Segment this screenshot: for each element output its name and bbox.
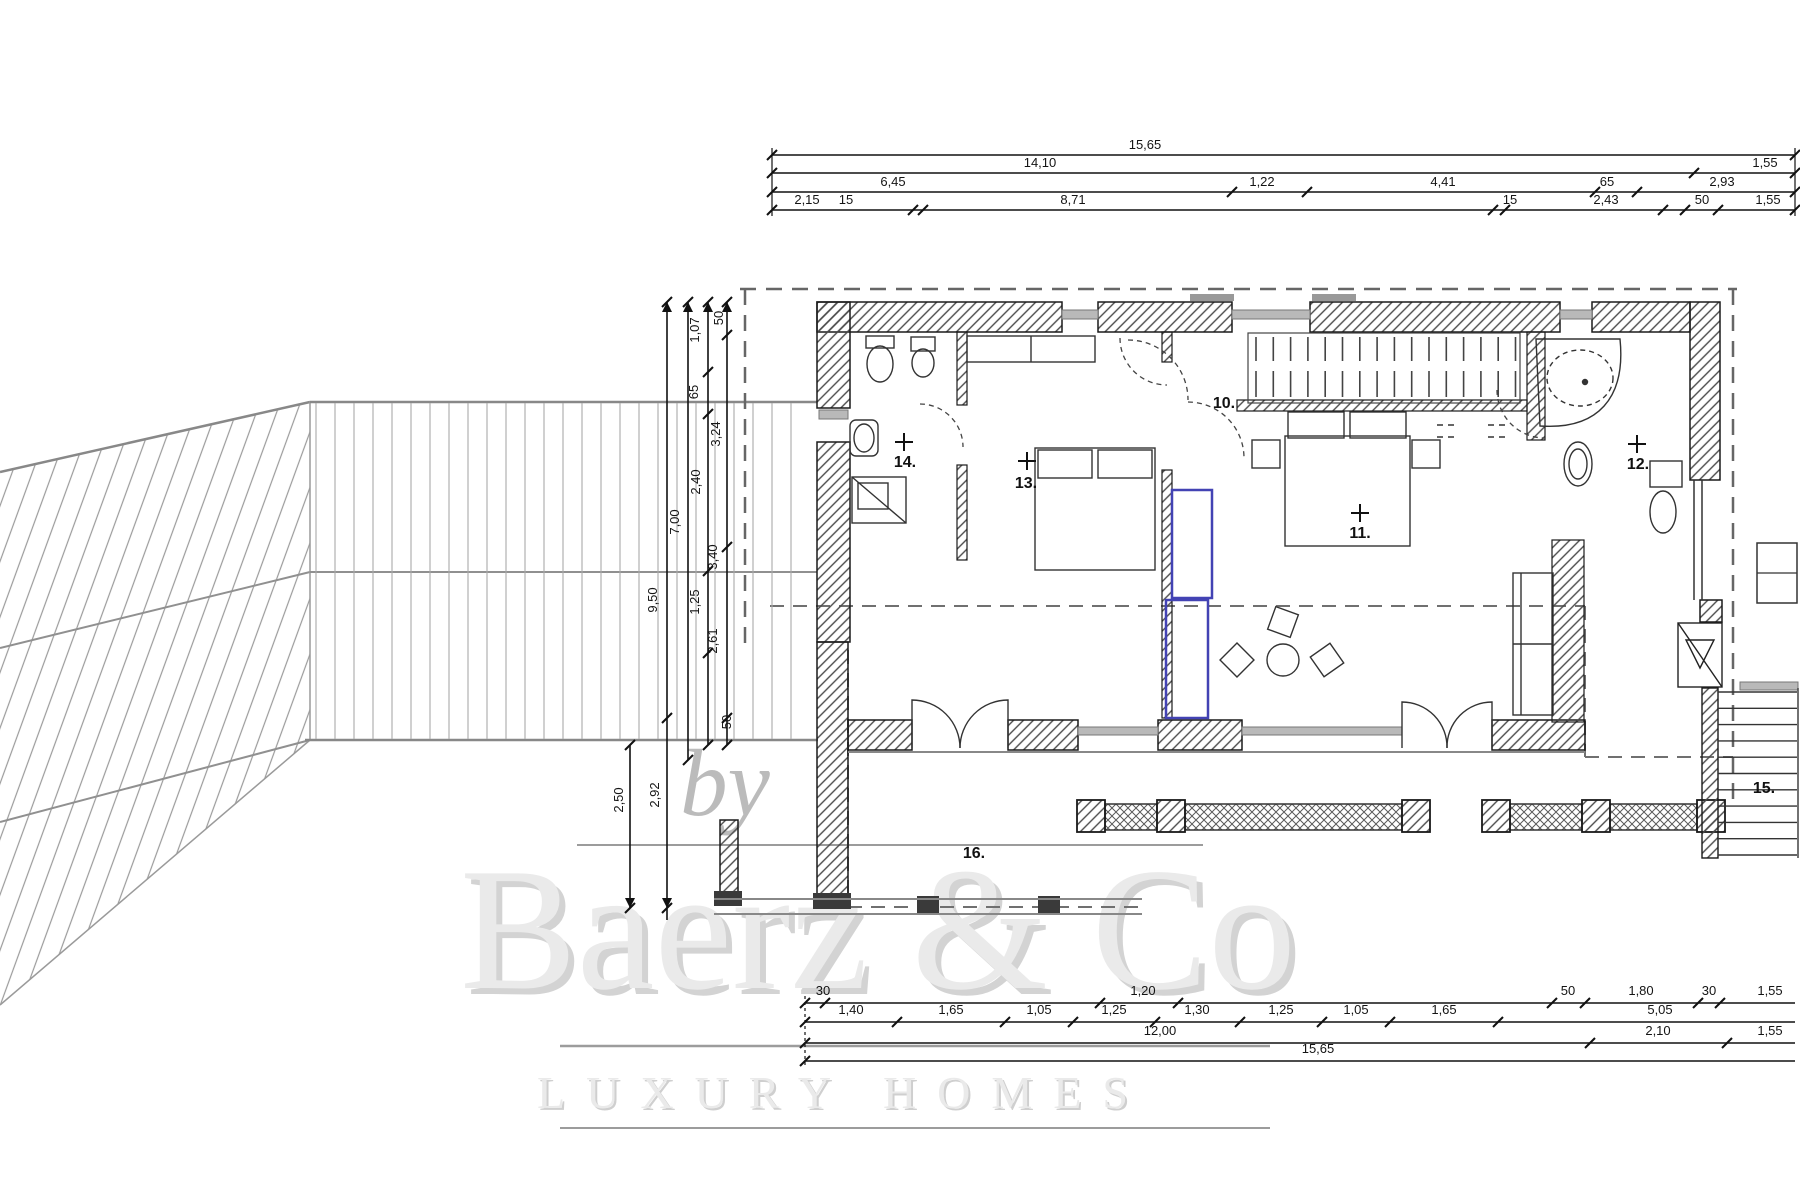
svg-text:1,25: 1,25 — [1101, 1002, 1126, 1017]
svg-text:1,55: 1,55 — [1755, 192, 1780, 207]
staircase-right — [1702, 543, 1798, 858]
svg-text:50: 50 — [1561, 983, 1575, 998]
chair-icon — [1310, 643, 1343, 676]
room-label-15: 15. — [1753, 780, 1775, 797]
svg-text:1,07: 1,07 — [687, 317, 702, 342]
toilet-icon — [867, 346, 893, 382]
floor-plan-page: byBaerz & CoBaerz & CoLUXURY HOMESLUXURY… — [0, 0, 1800, 1200]
svg-text:1,25: 1,25 — [687, 589, 702, 614]
svg-text:1,05: 1,05 — [1343, 1002, 1368, 1017]
svg-text:1,30: 1,30 — [1184, 1002, 1209, 1017]
room-label-13: 13. — [1015, 475, 1037, 492]
svg-text:8,71: 8,71 — [1060, 192, 1085, 207]
room-labels: 10.11.12.13.14.15.16. — [894, 395, 1775, 862]
svg-text:5,05: 5,05 — [1647, 1002, 1672, 1017]
sloped-deck-band — [0, 402, 310, 1005]
svg-text:50: 50 — [1695, 192, 1709, 207]
toilet-tank-icon — [1650, 461, 1682, 487]
svg-text:1,25: 1,25 — [1268, 1002, 1293, 1017]
svg-text:1,55: 1,55 — [1757, 983, 1782, 998]
staircase-room10 — [1248, 333, 1520, 403]
svg-text:2,43: 2,43 — [1593, 192, 1618, 207]
bed-icon — [1035, 448, 1155, 570]
svg-text:15,65: 15,65 — [1129, 137, 1162, 152]
watermark: byBaerz & CoBaerz & CoLUXURY HOMESLUXURY… — [460, 730, 1302, 1128]
toilet-icon — [1650, 491, 1676, 533]
svg-text:1,55: 1,55 — [1752, 155, 1777, 170]
interior-walls — [957, 332, 1584, 722]
svg-text:1,40: 1,40 — [838, 1002, 863, 1017]
svg-text:6,45: 6,45 — [880, 174, 905, 189]
chair-icon — [1220, 643, 1254, 677]
room-label-14: 14. — [894, 454, 916, 471]
svg-text:1,22: 1,22 — [1249, 174, 1274, 189]
room-label-12: 12. — [1627, 456, 1649, 473]
svg-text:15: 15 — [839, 192, 853, 207]
svg-text:2,15: 2,15 — [794, 192, 819, 207]
blue-closets — [1166, 490, 1212, 718]
svg-text:12,00: 12,00 — [1144, 1023, 1177, 1038]
svg-text:2,61: 2,61 — [705, 628, 720, 653]
room-label-16: 16. — [963, 845, 985, 862]
svg-text:4,41: 4,41 — [1430, 174, 1455, 189]
svg-text:15: 15 — [1503, 192, 1517, 207]
svg-text:30: 30 — [816, 983, 830, 998]
svg-text:15,65: 15,65 — [1302, 1041, 1335, 1056]
svg-text:50: 50 — [719, 715, 734, 729]
svg-text:2,10: 2,10 — [1645, 1023, 1670, 1038]
watermark-brand: Baerz & Co — [460, 832, 1296, 1026]
svg-text:1,05: 1,05 — [1026, 1002, 1051, 1017]
svg-text:65: 65 — [1600, 174, 1614, 189]
svg-text:1,65: 1,65 — [1431, 1002, 1456, 1017]
floor-plan-drawing: byBaerz & CoBaerz & CoLUXURY HOMESLUXURY… — [0, 0, 1800, 1200]
nightstand-icon — [1412, 440, 1440, 468]
svg-text:30: 30 — [1702, 983, 1716, 998]
room-label-10: 10. — [1213, 395, 1235, 412]
svg-text:2,50: 2,50 — [611, 787, 626, 812]
right-wall-lower — [1694, 480, 1702, 600]
svg-text:9,50: 9,50 — [645, 587, 660, 612]
svg-text:65: 65 — [686, 385, 701, 399]
bed-icon — [1285, 436, 1410, 546]
svg-text:2,93: 2,93 — [1709, 174, 1734, 189]
svg-text:7,00: 7,00 — [667, 509, 682, 534]
corner-bathtub-icon — [1536, 339, 1621, 426]
svg-text:1,20: 1,20 — [1130, 983, 1155, 998]
stair-treads-right — [1718, 692, 1797, 855]
nightstand-icon — [1252, 440, 1280, 468]
room-label-11: 11. — [1349, 525, 1370, 542]
svg-text:2,40: 2,40 — [688, 469, 703, 494]
svg-text:1,80: 1,80 — [1628, 983, 1653, 998]
table-icon — [1267, 644, 1299, 676]
svg-text:1,55: 1,55 — [1757, 1023, 1782, 1038]
svg-text:3,24: 3,24 — [708, 421, 723, 446]
stair-treads-room10 — [1256, 337, 1516, 397]
svg-text:50: 50 — [711, 311, 726, 325]
svg-text:3,40: 3,40 — [705, 544, 720, 569]
svg-text:2,92: 2,92 — [647, 782, 662, 807]
room11-furniture — [1220, 412, 1553, 715]
bathroom14-fixtures — [850, 336, 935, 523]
bathroom12-fixtures — [1536, 339, 1682, 533]
fireplace — [1678, 623, 1722, 687]
watermark-tagline: LUXURY HOMES — [537, 1067, 1149, 1118]
svg-text:1,65: 1,65 — [938, 1002, 963, 1017]
room13-furniture — [967, 336, 1155, 570]
chair-icon — [1268, 607, 1299, 638]
terrace-parapet — [1077, 800, 1725, 832]
deck-terrace — [305, 402, 818, 740]
svg-text:14,10: 14,10 — [1024, 155, 1057, 170]
